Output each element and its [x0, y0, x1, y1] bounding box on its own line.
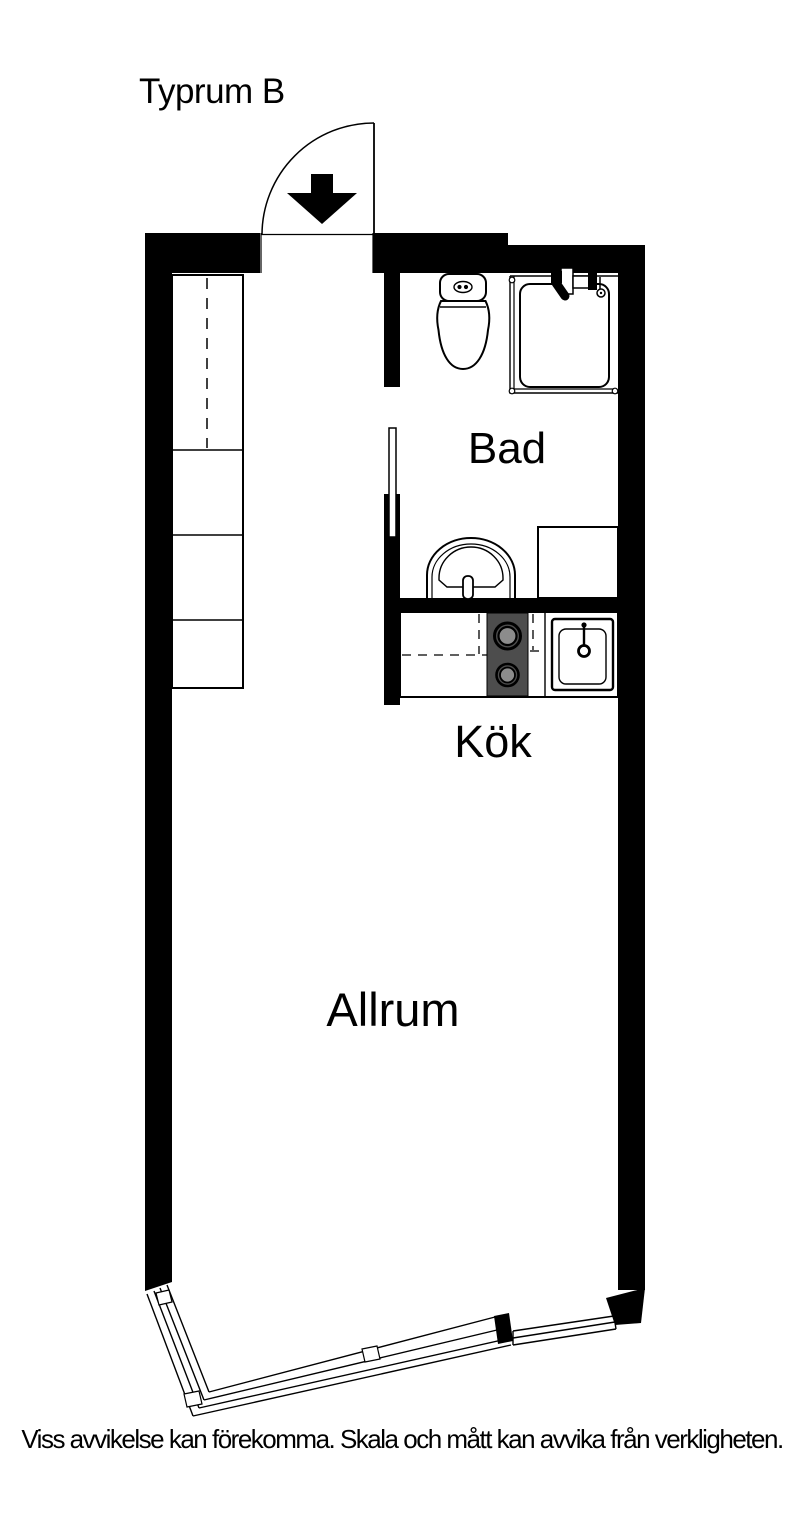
window-frame-joint-mid [362, 1346, 380, 1362]
wardrobe-unit [172, 275, 243, 688]
wall-right [618, 273, 645, 1290]
kitchen-fixtures [400, 612, 618, 697]
toilet-flush-dot-left [457, 285, 461, 289]
washing-machine [538, 527, 618, 598]
wall-bath-south [400, 598, 618, 612]
window-frame-joint-corner [184, 1391, 202, 1407]
shower-mixer-arm [573, 276, 589, 288]
window-frame-joint-top [156, 1290, 172, 1305]
kitchen-tap-ring [579, 646, 590, 657]
entrance-arrow-shaft [311, 174, 333, 194]
wall-top-right [508, 245, 645, 273]
toilet-flush-dot-right [464, 285, 468, 289]
stove-burner-bottom [500, 668, 515, 683]
wall-left [145, 233, 172, 1291]
floor-plan-page: Typrum B Bad Kök Allrum Viss avvikelse k… [0, 0, 800, 1523]
shower-corner-dot-bl [509, 388, 515, 394]
stove [487, 613, 528, 696]
stove-burner-top [499, 627, 517, 645]
room-label-kitchen: Kök [454, 716, 532, 767]
floor-plan-drawing: Typrum B Bad Kök Allrum Viss avvikelse k… [0, 0, 800, 1523]
bathroom-door-leaf [389, 428, 396, 537]
plan-title: Typrum B [139, 72, 285, 111]
plan-background [0, 0, 800, 1523]
toilet [437, 274, 489, 369]
disclaimer-text: Viss avvikelse kan förekomma. Skala och … [21, 1424, 782, 1454]
shower-mixer-cap [588, 273, 597, 290]
room-label-bathroom: Bad [468, 424, 546, 473]
basin-tap [463, 576, 473, 599]
shower-corner-dot-br [612, 388, 618, 394]
wall-top-mid [373, 233, 508, 273]
shower [509, 268, 618, 394]
shower-drain-dot [600, 292, 602, 294]
toilet-flush-button [454, 282, 472, 293]
wall-bath-west-upper [384, 273, 400, 387]
shower-corner-dot-tl [509, 277, 515, 283]
wall-top-left [145, 233, 260, 273]
kitchen-tap-dot [581, 622, 586, 627]
wardrobe-outline [172, 275, 243, 688]
room-label-living-room: Allrum [326, 983, 459, 1036]
